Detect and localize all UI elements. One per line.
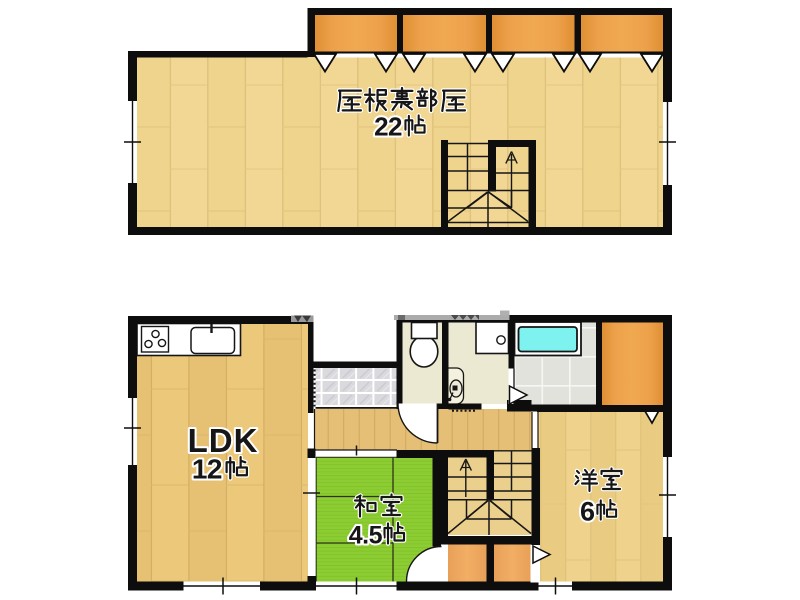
svg-text:6: 6 <box>580 497 595 527</box>
svg-text:22: 22 <box>374 112 402 142</box>
svg-text:4.5: 4.5 <box>349 522 383 550</box>
svg-text:12: 12 <box>192 454 222 485</box>
